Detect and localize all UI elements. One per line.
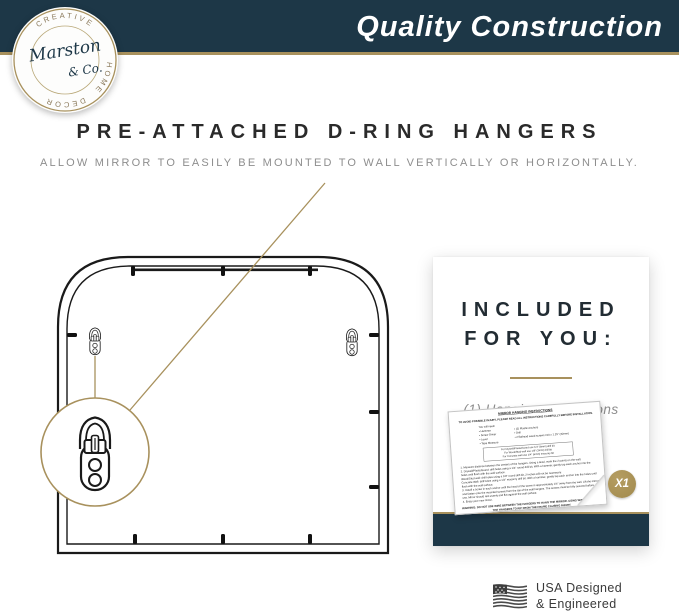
infographic-canvas: Quality Construction CREATIVE HOME DECOR…	[0, 0, 679, 611]
usa-designed-block: USA Designed & Engineered	[493, 580, 622, 611]
page-subtitle: ALLOW MIRROR TO EASILY BE MOUNTED TO WAL…	[0, 157, 679, 169]
sheet-need-list: You will need: • Hammer• Screw Driver• L…	[478, 417, 600, 446]
d-ring-hanger-right	[346, 329, 357, 356]
included-title-line1: INCLUDED	[433, 296, 649, 325]
included-title-line2: FOR YOU:	[433, 325, 649, 354]
usa-designed-text: USA Designed & Engineered	[536, 580, 622, 611]
page-title: PRE-ATTACHED D-RING HANGERS	[0, 121, 679, 144]
usa-line1: USA Designed	[536, 580, 622, 596]
brand-logo-stamp: CREATIVE HOME DECOR Marston & Co.	[12, 7, 118, 113]
instruction-sheet: MIRROR HANGING INSTRUCTIONS TO AVOID POS…	[448, 401, 608, 515]
sheet-need-left: • Hammer• Screw Driver• Level• Tape Meas…	[479, 428, 499, 445]
logo-script-name: Marston	[11, 33, 119, 69]
usa-flag-icon	[493, 584, 527, 609]
card-footer-band	[433, 512, 649, 546]
gold-divider	[510, 377, 572, 379]
headline-block: PRE-ATTACHED D-RING HANGERS ALLOW MIRROR…	[0, 121, 679, 169]
quantity-badge: X1	[608, 470, 636, 498]
usa-line2: & Engineered	[536, 596, 622, 611]
page-curl	[575, 475, 607, 507]
included-card: INCLUDED FOR YOU: (1) Hanging Instructio…	[433, 257, 649, 546]
sheet-need-right: • (2) Plastic Anchors• Drill• 2 flathead…	[514, 423, 569, 443]
header-title: Quality Construction	[356, 0, 663, 54]
included-card-title: INCLUDED FOR YOU:	[433, 296, 649, 354]
d-ring-hanger-left	[89, 328, 100, 355]
logo-script: Marston & Co.	[12, 7, 118, 113]
logo-script-co: & Co.	[67, 60, 103, 79]
